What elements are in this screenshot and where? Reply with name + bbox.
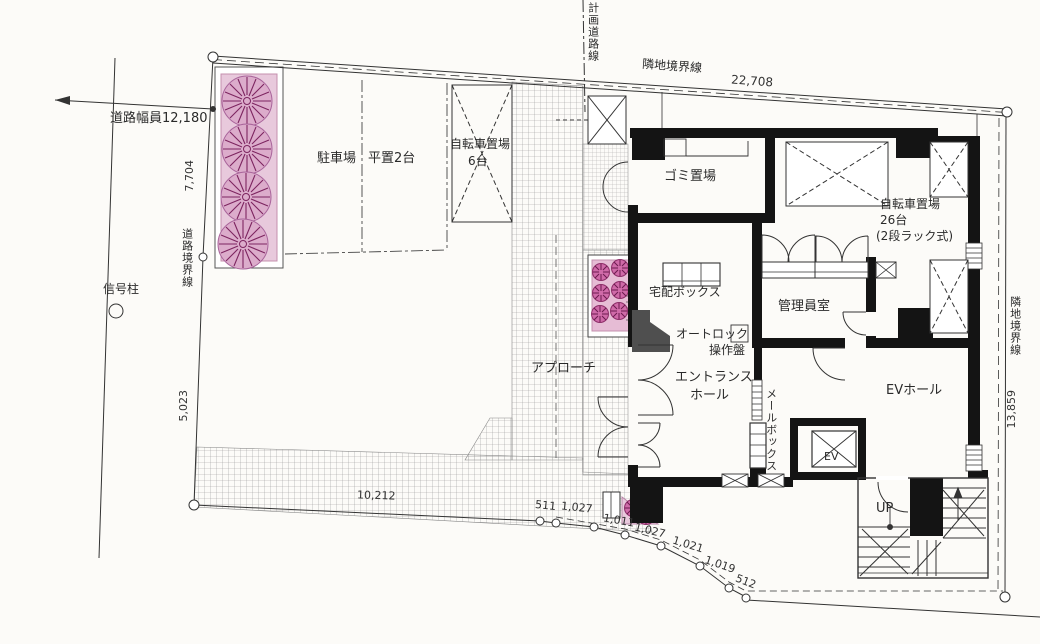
tree-icon — [218, 219, 268, 269]
mailbox-label: メールボックス — [764, 388, 777, 472]
parking-label: 駐車場 — [317, 152, 356, 167]
signal-pole-label: 信号柱 — [103, 283, 139, 297]
planting-strip — [215, 67, 283, 269]
dim-511: 511 — [534, 499, 556, 514]
ev-hall-label: EVホール — [886, 384, 942, 399]
road-boundary-line-label: 道路境界線 — [180, 228, 193, 288]
tree-icon — [222, 124, 272, 174]
garbage-room-counter — [664, 139, 748, 156]
tree-icon — [222, 76, 272, 126]
tree-icon — [221, 172, 271, 222]
up-label: UP — [876, 502, 893, 517]
bush-icon — [593, 264, 610, 281]
entrance-step — [632, 310, 670, 352]
bush-icon — [612, 282, 629, 299]
delivery-box-label: 宅配ボックス — [649, 286, 721, 300]
site-plan-drawing — [0, 0, 1040, 644]
entrance-hall-label-1: エントランス — [675, 371, 753, 386]
adjacent-boundary-right-label: 隣地境界線 — [1008, 296, 1021, 356]
parking-type-label: 平置2台 — [368, 152, 415, 167]
manager-room-label: 管理員室 — [778, 300, 830, 315]
garbage-room-label: ゴミ置場 — [664, 170, 716, 185]
entrance-flower-box — [588, 255, 633, 337]
entrance-hall-label-2: ホール — [690, 389, 729, 404]
ev-label: EV — [824, 451, 838, 464]
rack-room-door-sills — [762, 262, 896, 278]
approach-label: アプローチ — [531, 362, 596, 377]
planned-road-line-label: 計画道路線 — [586, 2, 599, 62]
autolock-label-1: オートロック — [676, 328, 748, 342]
bush-icon — [592, 306, 609, 323]
bush-icon — [612, 260, 629, 277]
dim-left-lower: 5,023 — [178, 390, 191, 422]
parking-stall-lines — [285, 80, 447, 254]
dim-left-upper: 7,704 — [184, 160, 197, 192]
road-width-dimension — [55, 96, 216, 112]
bicycle6-count-label: 6台 — [468, 155, 488, 169]
floor-plan: 道路幅員12,180 信号柱 計画道路線 道路境界線 隣地境界線 22,708 … — [0, 0, 1040, 644]
dim-top: 22,708 — [731, 74, 774, 91]
dim-bottom: 10,212 — [357, 489, 396, 503]
bush-icon — [593, 285, 610, 302]
bush-icon — [611, 303, 628, 320]
bicycle26-count-label: 26台 — [880, 214, 907, 228]
autolock-label-2: 操作盤 — [709, 344, 745, 358]
road-width-label: 道路幅員12,180 — [110, 112, 208, 127]
delivery-box-unit — [663, 263, 720, 286]
dim-right: 13,859 — [1006, 390, 1019, 429]
bicycle26-label: 自転車置場 — [880, 198, 940, 212]
bicycle6-label: 自転車置場 — [450, 138, 510, 152]
signal-pole-icon — [109, 304, 123, 318]
bicycle26-type-label: (2段ラック式) — [876, 230, 953, 244]
